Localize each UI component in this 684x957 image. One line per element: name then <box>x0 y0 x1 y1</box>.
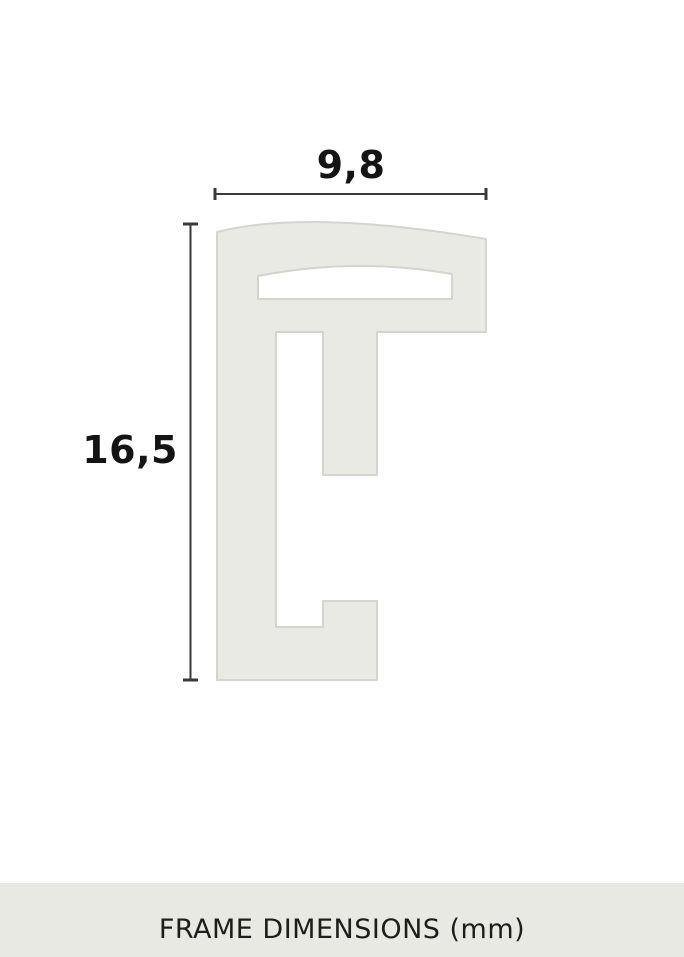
width-dimension-line <box>215 188 486 200</box>
caption-band: FRAME DIMENSIONS (mm) <box>0 883 684 957</box>
frame-profile-shape <box>217 222 486 680</box>
height-dimension-label: 16,5 <box>58 431 178 469</box>
caption-text: FRAME DIMENSIONS (mm) <box>159 914 525 945</box>
width-dimension-label: 9,8 <box>291 146 411 184</box>
frame-dimensions-figure: 9,8 16,5 FRAME DIMENSIONS (mm) <box>0 0 684 957</box>
height-dimension-line <box>183 224 198 680</box>
